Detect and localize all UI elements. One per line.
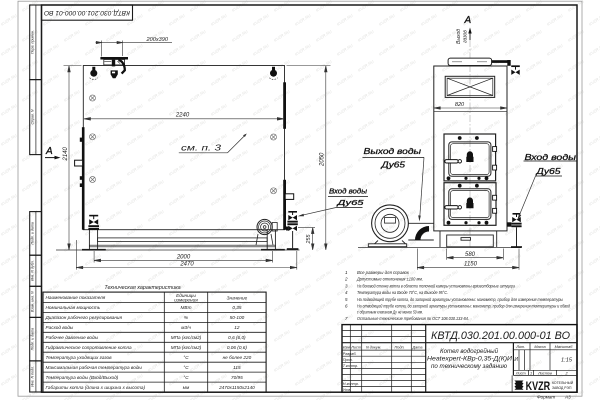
svg-text:Техническая характеристика: Техническая характеристика bbox=[104, 285, 180, 291]
svg-text:Расход воды: Расход воды bbox=[46, 325, 74, 330]
svg-text:Справ. N: Справ. N bbox=[31, 109, 35, 124]
svg-text:газов: газов bbox=[462, 30, 468, 43]
svg-text:Допустимые отклонения ±100 мм: Допустимые отклонения ±100 мм. bbox=[356, 277, 423, 282]
svg-text:°С: °С bbox=[183, 365, 189, 370]
svg-text:Температура воды (Вход/Выход): Температура воды (Вход/Выход) bbox=[46, 375, 119, 380]
svg-text:МВт: МВт bbox=[181, 305, 192, 310]
svg-text:А3: А3 bbox=[564, 394, 571, 399]
svg-text:МПа (кгс/см2): МПа (кгс/см2) bbox=[171, 335, 202, 340]
svg-text:А: А bbox=[464, 15, 472, 26]
svg-text:Значение: Значение bbox=[227, 296, 248, 301]
svg-text:Ду65: Ду65 bbox=[535, 166, 561, 176]
svg-text:И: И bbox=[514, 357, 518, 363]
svg-text:не более 220: не более 220 bbox=[223, 355, 252, 360]
svg-text:2000: 2000 bbox=[176, 255, 191, 261]
svg-text:КОТЕЛЬНЫЙ: КОТЕЛЬНЫЙ bbox=[552, 381, 574, 385]
svg-text:Все размеры для справок: Все размеры для справок bbox=[357, 270, 410, 275]
svg-text:255: 255 bbox=[306, 234, 312, 245]
svg-text:0,35: 0,35 bbox=[232, 305, 242, 310]
svg-text:А: А bbox=[45, 146, 53, 157]
svg-text:Подп.: Подп. bbox=[395, 346, 405, 350]
svg-text:Котел водогрейный: Котел водогрейный bbox=[440, 348, 499, 355]
svg-text:2: 2 bbox=[344, 277, 348, 282]
svg-text:Разраб.: Разраб. bbox=[343, 352, 357, 356]
svg-text:Взам. инв. N: Взам. инв. N bbox=[31, 291, 35, 312]
svg-text:Масса: Масса bbox=[534, 345, 545, 349]
svg-text:12: 12 bbox=[234, 325, 240, 330]
svg-text:МПа (кгс/см2): МПа (кгс/см2) bbox=[171, 345, 202, 350]
svg-text:115: 115 bbox=[233, 365, 241, 370]
svg-text:1150: 1150 bbox=[464, 262, 478, 268]
svg-text:Температура воды на Входе 70°: Температура воды на Входе 70°С, на Выход… bbox=[357, 290, 448, 295]
svg-text:Heatexpert-КВр-0,35-Д(К)И: Heatexpert-КВр-0,35-Д(К)И bbox=[427, 355, 513, 362]
svg-text:°С: °С bbox=[183, 375, 189, 380]
svg-text:KVZR: KVZR bbox=[526, 379, 551, 393]
svg-text:Максимальная рабочая температу: Максимальная рабочая температура воды bbox=[46, 365, 143, 370]
svg-text:Диапазон рабочего регулировани: Диапазон рабочего регулирования bbox=[45, 315, 123, 320]
svg-text:0,06 (0,6): 0,06 (0,6) bbox=[227, 345, 248, 350]
svg-text:0,6 (6,0): 0,6 (6,0) bbox=[228, 335, 246, 340]
svg-text:Пров.: Пров. bbox=[343, 358, 353, 362]
svg-text:измерения: измерения bbox=[174, 297, 198, 302]
svg-text:2050: 2050 bbox=[320, 152, 326, 167]
svg-text:2470х1150х2140: 2470х1150х2140 bbox=[218, 385, 255, 390]
svg-text:Вход воды: Вход воды bbox=[329, 187, 367, 196]
svg-text:Температура уходящих газов: Температура уходящих газов bbox=[46, 355, 113, 360]
svg-text:Т.контр.: Т.контр. bbox=[343, 364, 358, 368]
svg-text:Утв.: Утв. bbox=[343, 388, 352, 392]
svg-text:2470: 2470 bbox=[179, 262, 194, 268]
svg-text:с обратным клапаном Ду не мен: с обратным клапаном Ду не менее 50 мм. bbox=[357, 310, 423, 315]
svg-text:Номинальная мощность: Номинальная мощность bbox=[46, 305, 101, 310]
svg-text:°С: °С bbox=[183, 355, 189, 360]
svg-text:Лит.: Лит. bbox=[515, 345, 525, 349]
svg-text:2140: 2140 bbox=[63, 146, 69, 161]
svg-text:Инв. N подл.: Инв. N подл. bbox=[31, 366, 35, 387]
svg-text:Н.контр.: Н.контр. bbox=[343, 382, 359, 386]
svg-text:На подводящей трубе котла, д: На подводящей трубе котла, до запорной а… bbox=[357, 296, 564, 302]
svg-text:Вход воды: Вход воды bbox=[525, 152, 577, 162]
svg-text:N докум.: N докум. bbox=[366, 346, 381, 350]
svg-text:На боковой стенке котла в обла: На боковой стенке котла в области топочн… bbox=[357, 283, 515, 289]
svg-text:ЗАВОД РЭП: ЗАВОД РЭП bbox=[552, 386, 572, 390]
svg-text:2240: 2240 bbox=[175, 113, 190, 119]
svg-text:1: 1 bbox=[530, 372, 532, 376]
svg-text:Лист: Лист bbox=[515, 372, 526, 376]
svg-text:Выход: Выход bbox=[456, 29, 462, 44]
svg-text:Рабочее давление воды: Рабочее давление воды bbox=[46, 335, 99, 340]
svg-text:мм: мм bbox=[183, 385, 190, 390]
svg-text:КВТД.030.201.00.000-01 ВО: КВТД.030.201.00.000-01 ВО bbox=[431, 330, 571, 342]
svg-text:Изм: Изм bbox=[343, 346, 350, 350]
svg-text:Перв. примен.: Перв. примен. bbox=[31, 30, 35, 54]
svg-text:Габариты котла (длина х ширина: Габариты котла (длина х ширина х высота) bbox=[46, 385, 146, 390]
svg-text:Лист: Лист bbox=[350, 346, 361, 350]
svg-text:Подп. и дата: Подп. и дата bbox=[31, 222, 35, 245]
svg-text:200х390: 200х390 bbox=[146, 37, 169, 43]
svg-text:На отводящей трубе котла, до з: На отводящей трубе котла, до запорной ар… bbox=[357, 303, 570, 309]
svg-text:Наименование показателя: Наименование показателя bbox=[46, 295, 106, 300]
svg-text:Ду65: Ду65 bbox=[380, 160, 405, 170]
svg-text:Формат: Формат bbox=[537, 394, 555, 399]
svg-text:1:15: 1:15 bbox=[561, 358, 573, 364]
svg-text:%: % bbox=[184, 315, 188, 320]
svg-text:КВТД.030.201.00.000-01 ВО: КВТД.030.201.00.000-01 ВО bbox=[44, 9, 130, 16]
svg-text:Листов: Листов bbox=[537, 372, 552, 376]
svg-text:Инв. N дубл.: Инв. N дубл. bbox=[31, 260, 35, 281]
svg-text:70/95: 70/95 bbox=[231, 375, 243, 380]
svg-text:м3/ч: м3/ч bbox=[181, 325, 191, 330]
svg-text:Выход воды: Выход воды bbox=[364, 146, 422, 156]
svg-text:Подп. и дата: Подп. и дата bbox=[31, 328, 35, 351]
svg-text:50-100: 50-100 bbox=[230, 315, 245, 320]
svg-text:580: 580 bbox=[465, 252, 476, 258]
svg-text:Дата: Дата bbox=[412, 346, 423, 350]
svg-text:по техническому заданию: по техническому заданию bbox=[431, 363, 507, 370]
svg-text:Гидравлическое сопротивление к: Гидравлическое сопротивление котла bbox=[46, 345, 133, 350]
svg-text:Масштаб: Масштаб bbox=[555, 345, 574, 349]
svg-text:820: 820 bbox=[455, 102, 465, 108]
svg-text:см. п. 3: см. п. 3 bbox=[181, 142, 221, 152]
svg-text:Ду65: Ду65 bbox=[336, 198, 365, 207]
svg-text:Остальные технические требован: Остальные технические требования по ОСТ … bbox=[357, 316, 469, 321]
